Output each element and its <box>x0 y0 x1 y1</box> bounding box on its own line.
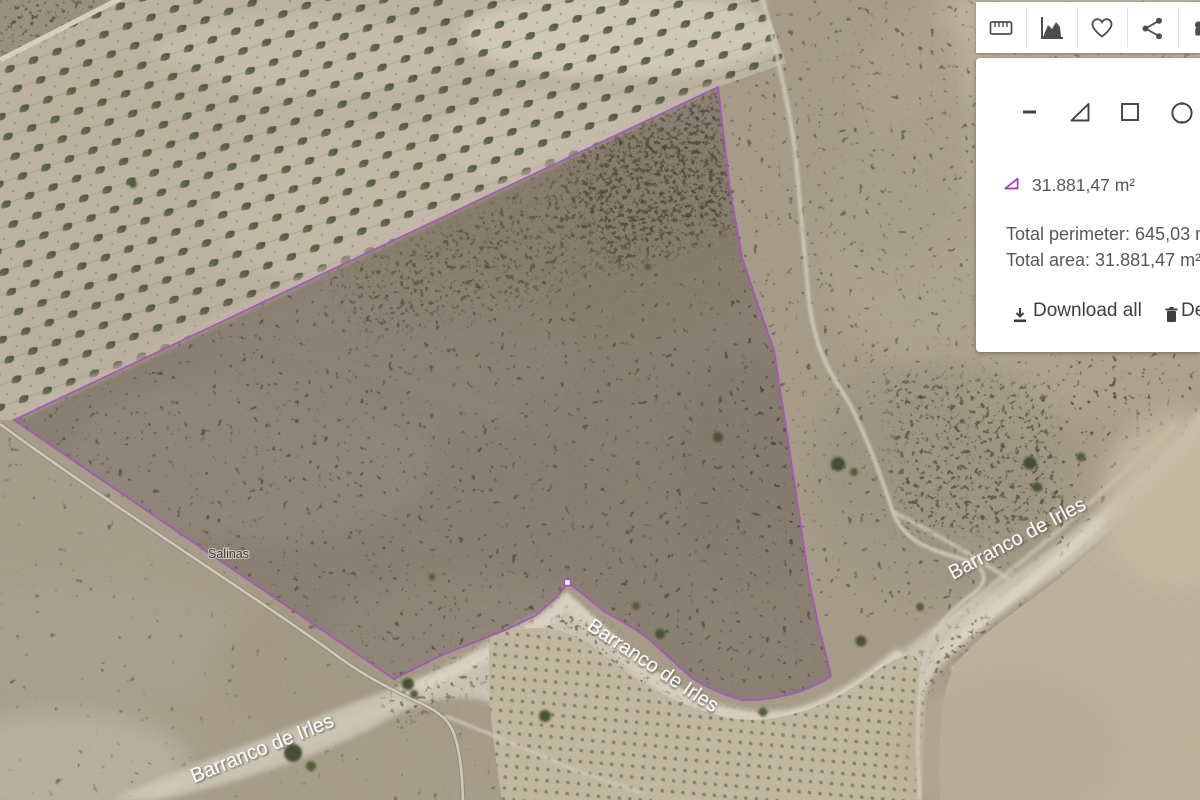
svg-text:Salinas: Salinas <box>208 547 249 561</box>
